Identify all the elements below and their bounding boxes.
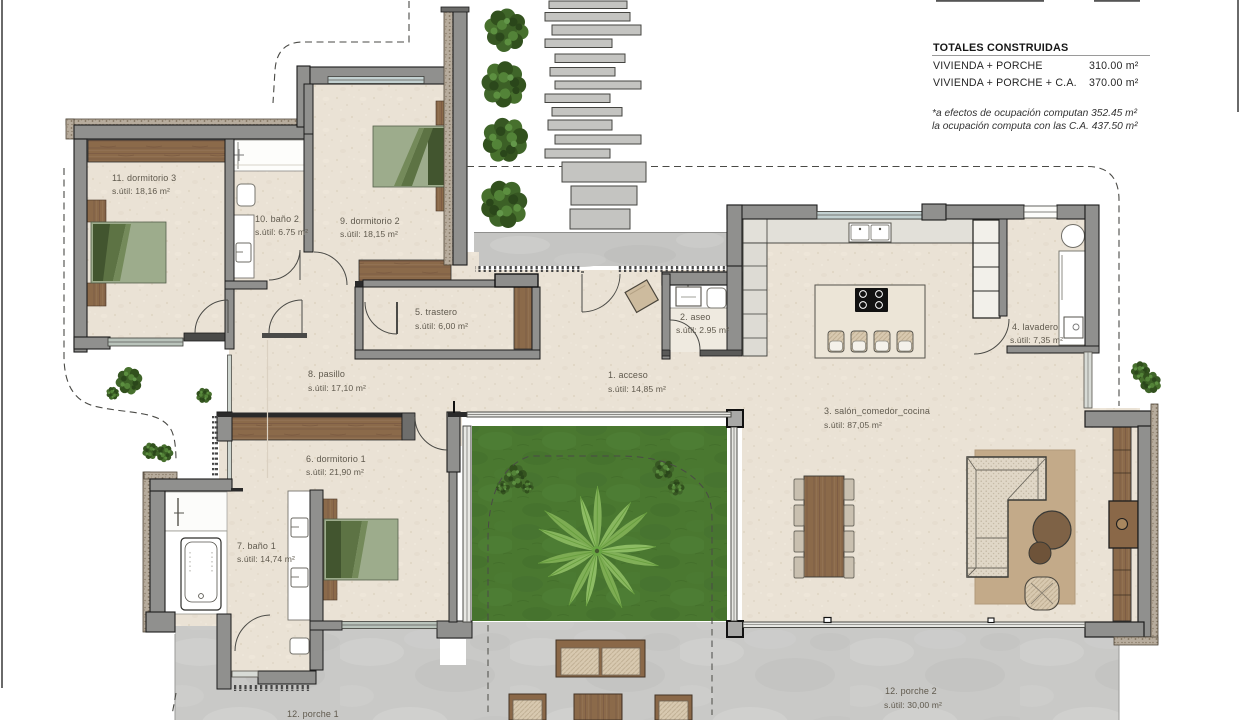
svg-text:s.útil: 18,16 m²: s.útil: 18,16 m² [112, 186, 170, 196]
svg-text:*a efectos de ocupación comput: *a efectos de ocupación computan 352.45 … [932, 108, 1138, 119]
svg-text:la ocupación computa con las C: la ocupación computa con las C.A. 437.50… [932, 121, 1138, 132]
svg-text:s.útil: 18,15 m²: s.útil: 18,15 m² [340, 229, 398, 239]
svg-text:s.útil: 30,00 m²: s.útil: 30,00 m² [884, 700, 942, 710]
svg-text:TOTALES CONSTRUIDAS: TOTALES CONSTRUIDAS [933, 42, 1068, 54]
svg-text:s.útil: 7,35 m²: s.útil: 7,35 m² [1010, 335, 1063, 345]
svg-text:s.útil: 6,00 m²: s.útil: 6,00 m² [415, 321, 468, 331]
svg-text:2. aseo: 2. aseo [680, 312, 711, 322]
svg-text:4. lavadero: 4. lavadero [1012, 322, 1058, 332]
svg-text:3. salón_comedor_cocina: 3. salón_comedor_cocina [824, 406, 930, 416]
svg-text:VIVIENDA + PORCHE + C.A.: VIVIENDA + PORCHE + C.A. [933, 77, 1077, 89]
svg-text:8. pasillo: 8. pasillo [308, 369, 345, 379]
svg-text:s.útil: 87,05 m²: s.útil: 87,05 m² [824, 420, 882, 430]
svg-text:12. porche 1: 12. porche 1 [287, 709, 339, 719]
svg-text:s.útil: 14,85 m²: s.útil: 14,85 m² [608, 384, 666, 394]
svg-text:s.útil: 21,90 m²: s.útil: 21,90 m² [306, 467, 364, 477]
svg-text:s.útil: 6.75 m²: s.útil: 6.75 m² [255, 227, 308, 237]
svg-text:s.útil: 17,10 m²: s.útil: 17,10 m² [308, 383, 366, 393]
svg-text:7. baño 1: 7. baño 1 [237, 541, 276, 551]
svg-text:s.útil: 2.95 m²: s.útil: 2.95 m² [676, 325, 729, 335]
svg-text:310.00 m²: 310.00 m² [1089, 60, 1139, 72]
svg-text:11. dormitorio 3: 11. dormitorio 3 [112, 173, 176, 183]
svg-text:6. dormitorio 1: 6. dormitorio 1 [306, 454, 366, 464]
svg-text:s.útil: 14,74 m²: s.útil: 14,74 m² [237, 554, 295, 564]
svg-text:5. trastero: 5. trastero [415, 307, 457, 317]
svg-text:12. porche 2: 12. porche 2 [885, 686, 937, 696]
svg-text:10. baño 2: 10. baño 2 [255, 214, 299, 224]
svg-text:1. acceso: 1. acceso [608, 370, 648, 380]
svg-text:370.00 m²: 370.00 m² [1089, 77, 1139, 89]
svg-text:9. dormitorio 2: 9. dormitorio 2 [340, 216, 400, 226]
svg-text:VIVIENDA + PORCHE: VIVIENDA + PORCHE [933, 60, 1043, 72]
